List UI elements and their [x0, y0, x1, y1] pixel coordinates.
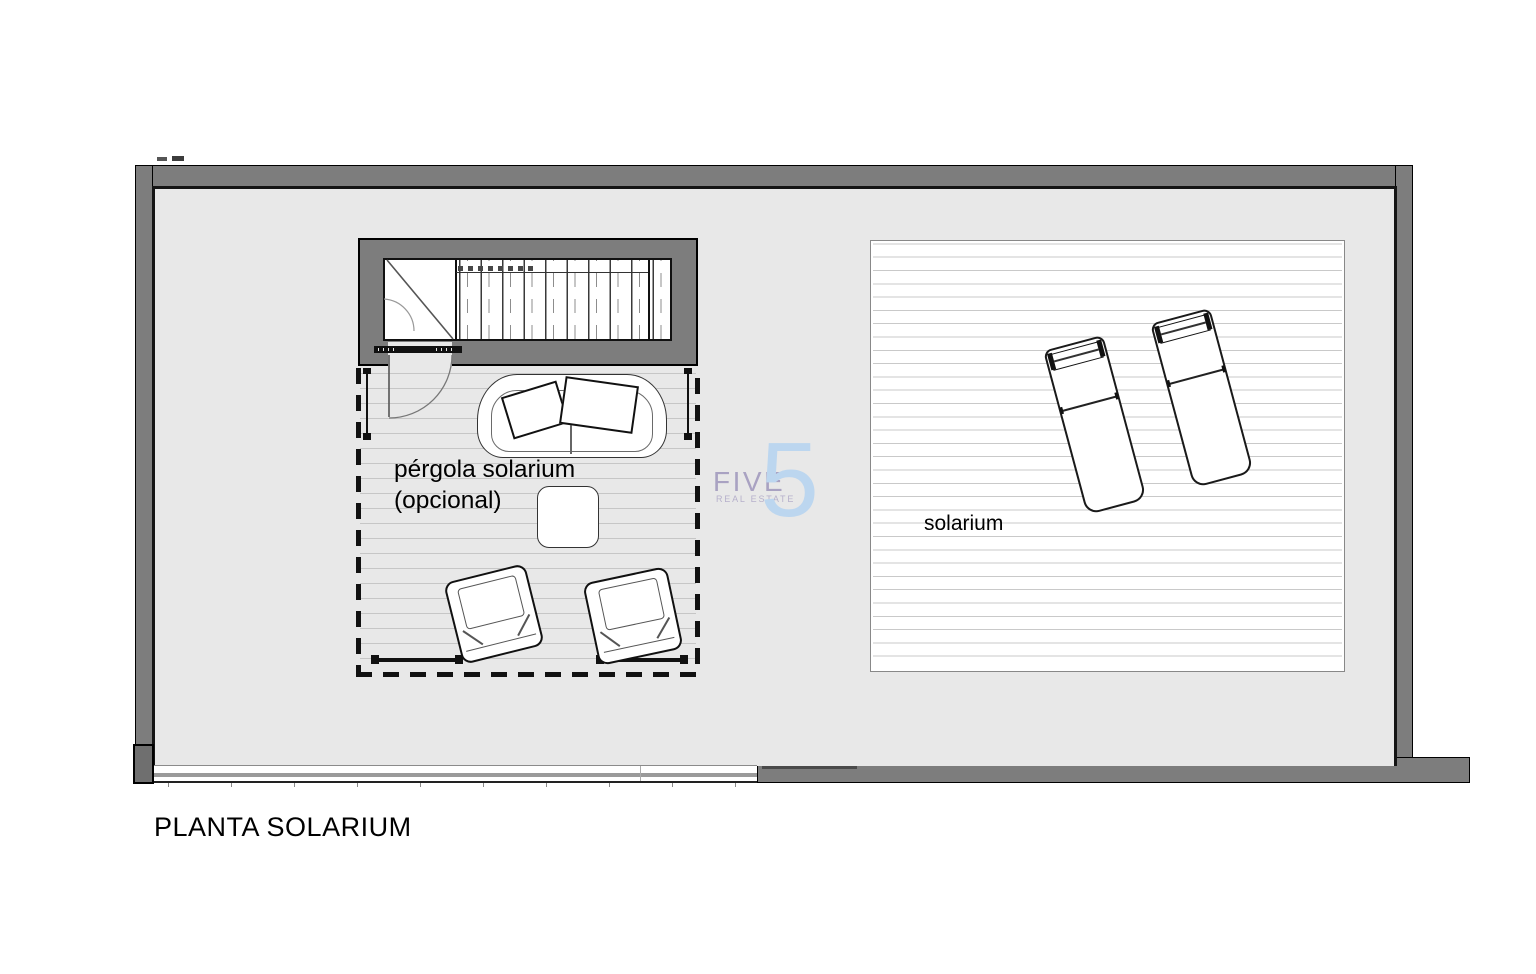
armchair-right-diag-a — [600, 631, 620, 646]
armchair-right — [582, 566, 684, 666]
armchair-right-back — [598, 577, 665, 631]
watermark-numeral: 5 — [760, 434, 819, 527]
sun-lounger-left-divider — [1061, 395, 1117, 411]
pergola-label: pérgola solarium (opcional) — [394, 454, 575, 516]
door-swing-arc — [389, 355, 452, 418]
pergola-label-line2: (opcional) — [394, 485, 575, 516]
armchair-left-diag-a — [463, 630, 484, 645]
armchair-left-seat-front — [466, 633, 536, 652]
sofa-pillow-right — [559, 376, 639, 434]
sun-lounger-left-notch-b — [1114, 392, 1119, 400]
armchair-right-seat-front — [604, 636, 675, 652]
sun-lounger-left-headrest-line — [1054, 349, 1099, 362]
sun-lounger-left-notch-a — [1059, 407, 1064, 415]
solarium-label: solarium — [924, 512, 1003, 536]
sun-lounger-right-notch-b — [1221, 365, 1226, 373]
armchair-left-back — [457, 575, 525, 630]
sun-lounger-right-divider — [1168, 368, 1224, 384]
stair-landing-diagonal — [387, 260, 453, 339]
sun-lounger-right-notch-a — [1166, 380, 1171, 388]
floor-plan-canvas: FIVE REAL ESTATE 5 pérgola solarium (opc… — [0, 0, 1536, 974]
plan-title: PLANTA SOLARIUM — [154, 812, 412, 843]
stair-landing-arc — [384, 299, 414, 331]
pergola-label-line1: pérgola solarium — [394, 454, 575, 485]
sun-lounger-right-headrest-line — [1161, 322, 1206, 335]
